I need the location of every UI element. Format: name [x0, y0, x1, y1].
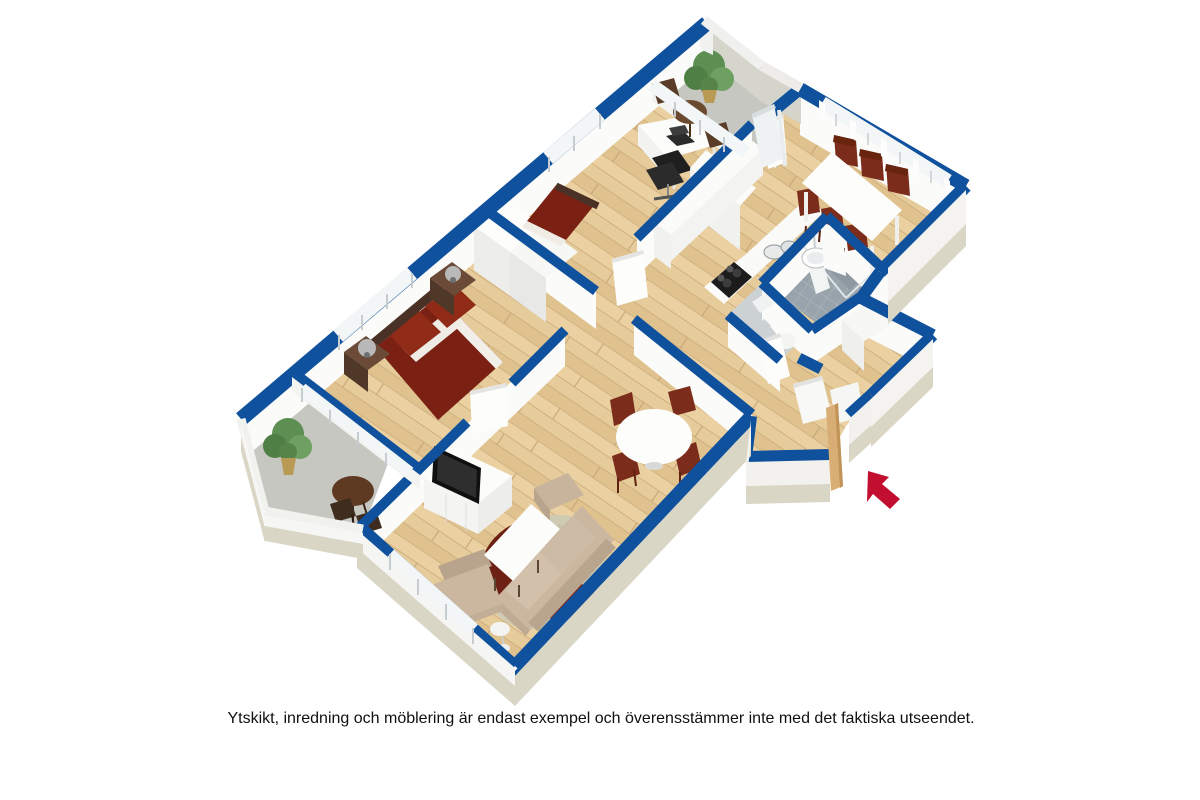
svg-text:Ytskikt, inredning och möbleri: Ytskikt, inredning och möblering är enda… — [227, 710, 974, 727]
